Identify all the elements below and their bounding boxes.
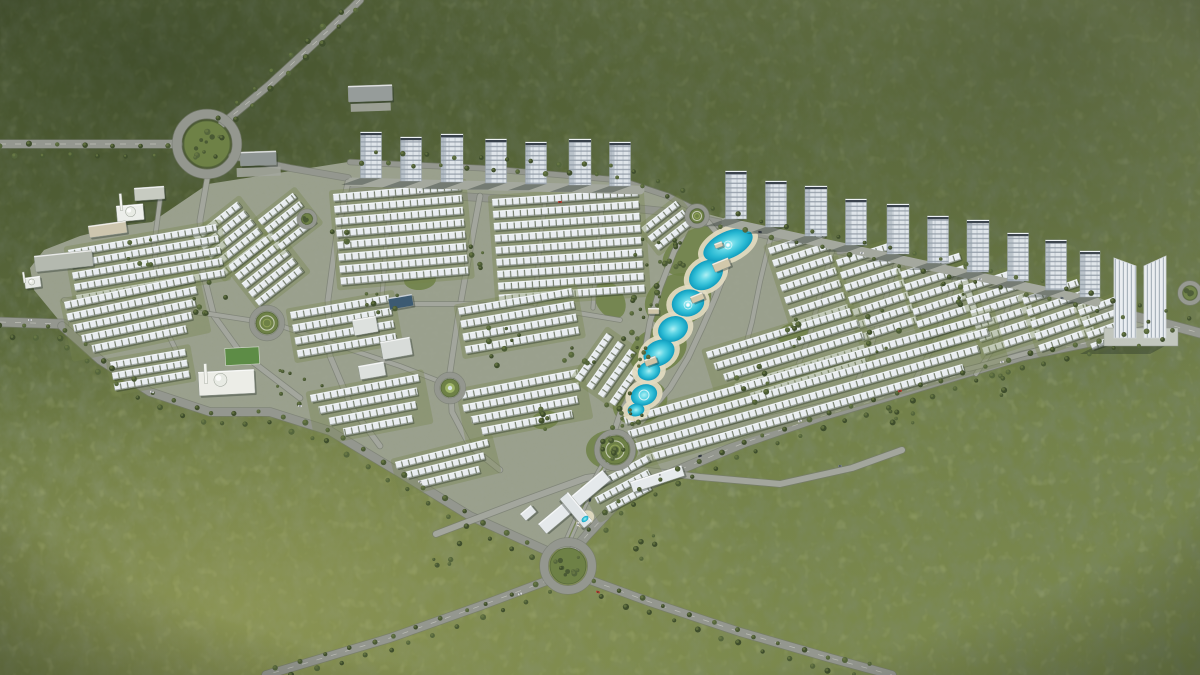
aerial-masterplan-render: Aerial 3D render of a forested master-pl… — [0, 0, 1200, 675]
scene-svg: Aerial 3D render of a forested master-pl… — [0, 0, 1200, 675]
vignette-overlay — [0, 0, 1200, 675]
